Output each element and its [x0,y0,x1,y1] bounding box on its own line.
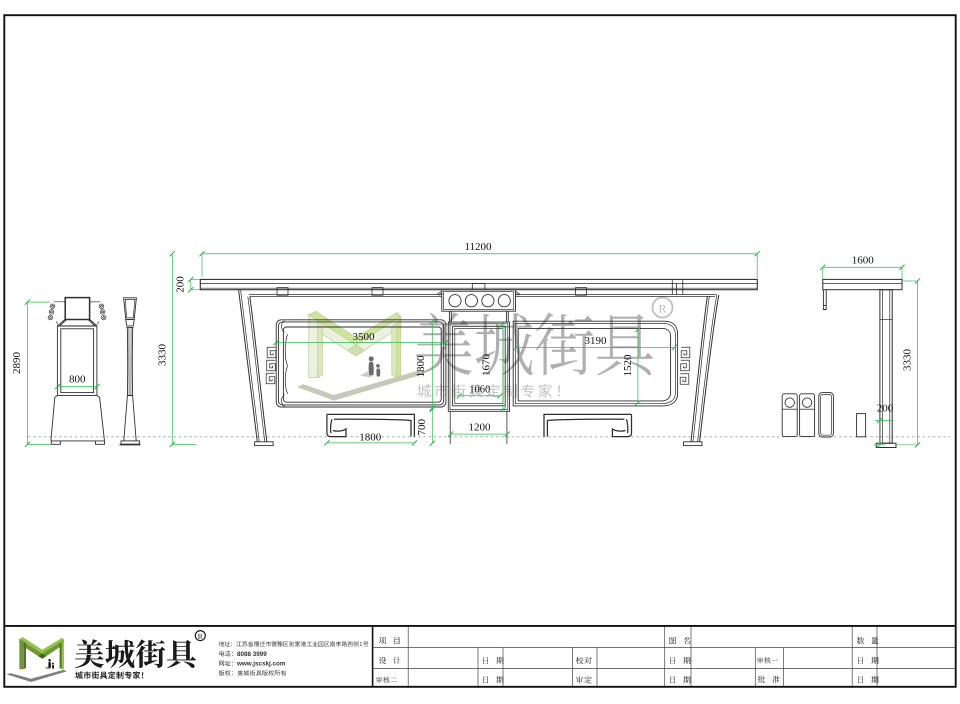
svg-text:800: 800 [69,373,86,385]
svg-text:1670: 1670 [481,354,493,377]
svg-text:2890: 2890 [11,352,23,375]
svg-text:200: 200 [877,403,894,415]
svg-text:3190: 3190 [585,335,608,347]
svg-text:11200: 11200 [464,241,492,253]
svg-text:8088 3999: 8088 3999 [237,651,267,658]
svg-text:700: 700 [416,419,428,436]
svg-text:1060: 1060 [469,384,490,395]
svg-text:3330: 3330 [157,344,169,367]
svg-text:R: R [198,632,203,641]
svg-text:www.jscskj.com: www.jscskj.com [236,661,286,668]
svg-text:1600: 1600 [852,254,875,266]
svg-text:3500: 3500 [353,331,376,343]
svg-text:1520: 1520 [622,354,634,377]
svg-text:200: 200 [175,276,187,293]
svg-text:1800: 1800 [359,432,382,444]
svg-text:1: 1 [359,642,362,648]
svg-text:R: R [658,301,666,315]
svg-text:1200: 1200 [469,422,492,434]
svg-text:3330: 3330 [902,349,914,372]
svg-text:1800: 1800 [415,355,427,378]
